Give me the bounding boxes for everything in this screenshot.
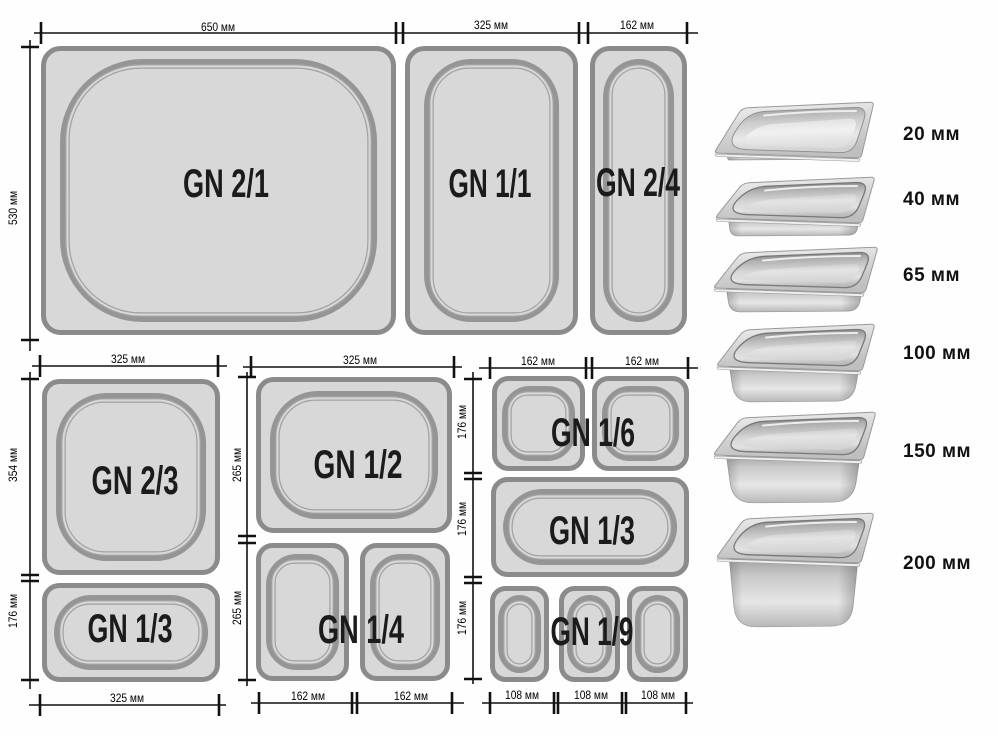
svg-text:GN 2/4: GN 2/4 <box>596 161 680 205</box>
svg-text:GN 2/3: GN 2/3 <box>92 459 179 503</box>
svg-text:GN 1/2: GN 1/2 <box>314 443 403 487</box>
svg-text:40 мм: 40 мм <box>903 189 960 210</box>
svg-text:176 мм: 176 мм <box>455 502 469 536</box>
svg-text:325 мм: 325 мм <box>474 18 508 32</box>
svg-text:176 мм: 176 мм <box>455 405 469 439</box>
svg-text:GN 1/1: GN 1/1 <box>449 162 532 206</box>
svg-text:325 мм: 325 мм <box>111 352 145 366</box>
svg-text:162 мм: 162 мм <box>291 689 325 703</box>
svg-text:162 мм: 162 мм <box>521 354 555 368</box>
svg-text:530 мм: 530 мм <box>6 191 20 225</box>
svg-text:GN 1/9: GN 1/9 <box>551 610 634 654</box>
svg-text:265 мм: 265 мм <box>230 591 244 625</box>
svg-text:162 мм: 162 мм <box>394 689 428 703</box>
svg-text:265 мм: 265 мм <box>230 448 244 482</box>
svg-text:325 мм: 325 мм <box>343 353 377 367</box>
svg-text:GN 1/3: GN 1/3 <box>549 509 635 553</box>
svg-text:354 мм: 354 мм <box>6 448 20 482</box>
svg-text:GN 1/6: GN 1/6 <box>551 411 635 455</box>
svg-text:176 мм: 176 мм <box>455 601 469 635</box>
svg-text:162 мм: 162 мм <box>620 18 654 32</box>
svg-text:100 мм: 100 мм <box>903 343 971 364</box>
svg-text:162 мм: 162 мм <box>625 354 659 368</box>
svg-text:108 мм: 108 мм <box>641 688 675 702</box>
svg-text:325 мм: 325 мм <box>110 691 144 705</box>
svg-text:108 мм: 108 мм <box>505 688 539 702</box>
svg-text:176 мм: 176 мм <box>6 594 20 628</box>
svg-text:20 мм: 20 мм <box>903 124 960 145</box>
svg-text:65 мм: 65 мм <box>903 265 960 286</box>
svg-text:GN 1/3: GN 1/3 <box>88 607 173 651</box>
svg-text:150 мм: 150 мм <box>903 441 971 462</box>
svg-text:GN 1/4: GN 1/4 <box>318 608 405 652</box>
svg-text:650 мм: 650 мм <box>201 20 235 34</box>
svg-text:GN 2/1: GN 2/1 <box>183 162 269 206</box>
svg-text:108 мм: 108 мм <box>574 688 608 702</box>
svg-text:200 мм: 200 мм <box>903 553 971 574</box>
